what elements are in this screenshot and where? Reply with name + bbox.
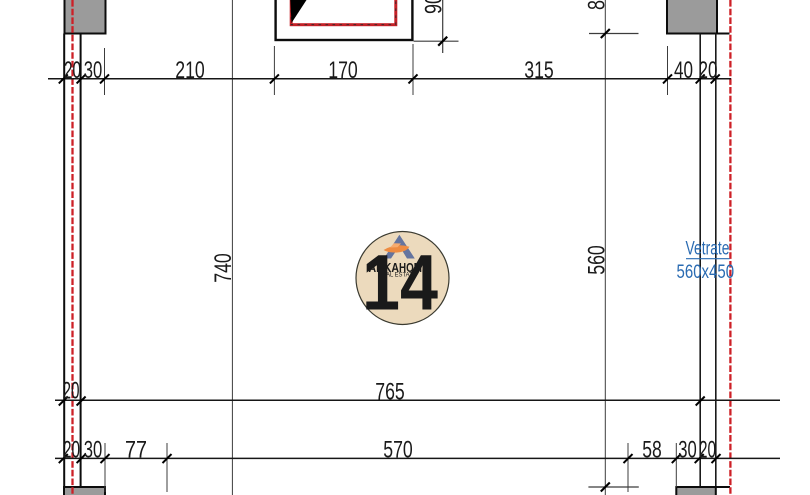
svg-text:30: 30	[678, 437, 697, 464]
svg-text:560x450: 560x450	[677, 262, 735, 283]
svg-text:20: 20	[63, 377, 80, 404]
svg-text:40: 40	[674, 57, 693, 84]
svg-text:Vetrate: Vetrate	[686, 239, 730, 260]
svg-text:20: 20	[64, 57, 81, 84]
svg-text:20: 20	[699, 437, 716, 464]
svg-text:20: 20	[63, 437, 80, 464]
svg-text:30: 30	[84, 437, 103, 464]
svg-text:560: 560	[583, 245, 610, 275]
svg-text:740: 740	[210, 253, 237, 283]
svg-text:20: 20	[699, 57, 718, 84]
svg-text:170: 170	[328, 57, 358, 84]
svg-text:80: 80	[583, 0, 610, 10]
svg-text:58: 58	[642, 437, 662, 464]
svg-text:315: 315	[524, 57, 554, 84]
svg-text:210: 210	[175, 57, 205, 84]
svg-text:90: 90	[421, 0, 448, 14]
svg-text:765: 765	[375, 379, 405, 406]
svg-text:14: 14	[362, 238, 438, 327]
svg-text:30: 30	[84, 57, 103, 84]
svg-text:570: 570	[383, 437, 413, 464]
svg-text:77: 77	[125, 437, 147, 464]
